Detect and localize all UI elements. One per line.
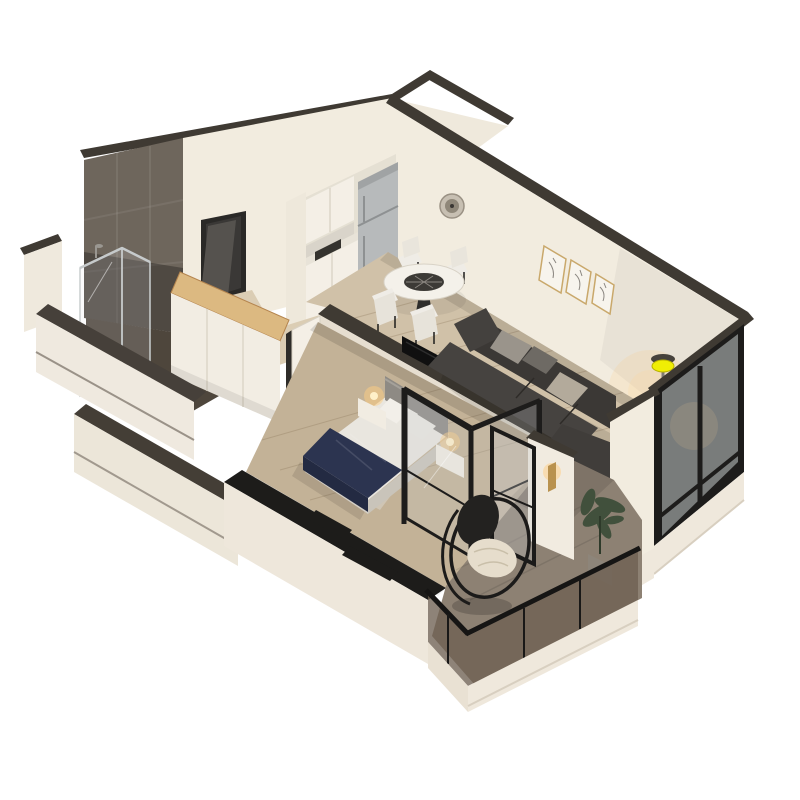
floor-plan-render (0, 0, 800, 800)
apartment-3d-scene (0, 0, 800, 800)
lamp-shade-lit (652, 360, 674, 372)
nightstand-lamp-lit (370, 392, 378, 400)
kitchen-tall-cabinet (286, 192, 306, 334)
wall-sconce (548, 462, 556, 492)
